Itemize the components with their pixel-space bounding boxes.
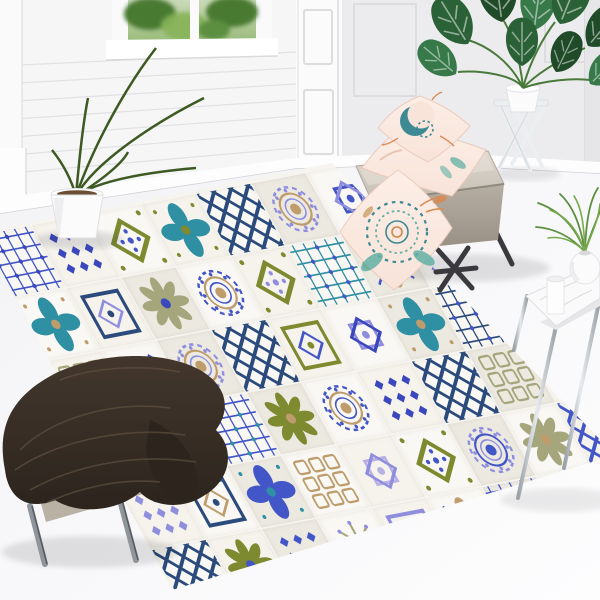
stool-shadow <box>2 536 178 568</box>
furniture-layer <box>0 0 600 600</box>
scene-root <box>0 0 600 600</box>
monstera-plant <box>411 0 600 95</box>
round-vase <box>570 251 600 284</box>
monstera-pot <box>506 84 540 112</box>
grass-plant <box>536 188 600 252</box>
knit-throw <box>3 356 228 509</box>
fan-palm <box>0 0 304 249</box>
palm-pot <box>51 189 103 239</box>
table-shadow <box>500 488 600 512</box>
candle <box>547 276 564 314</box>
stool-with-throw <box>2 356 228 568</box>
side-table <box>500 188 600 512</box>
palm-stems <box>52 48 204 196</box>
